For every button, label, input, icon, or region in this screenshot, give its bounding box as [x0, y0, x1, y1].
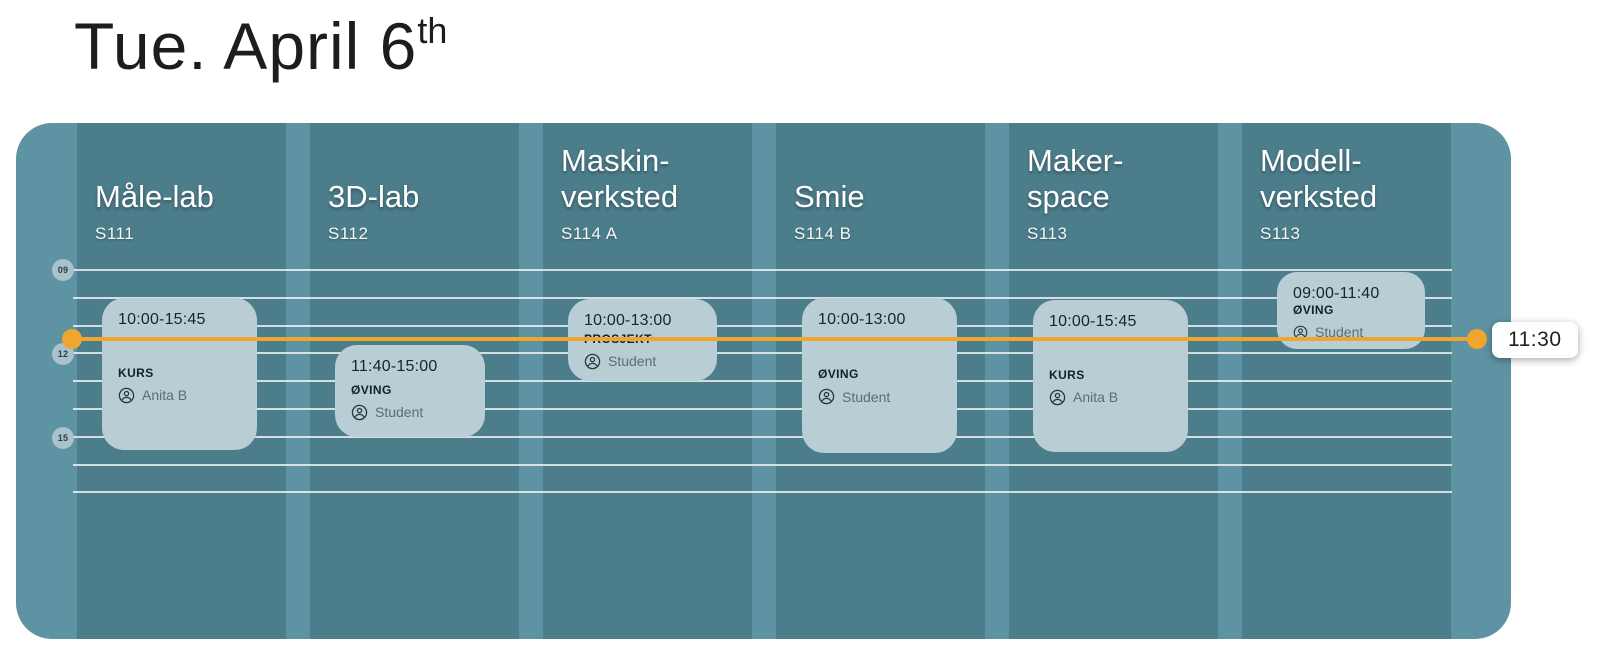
event-type: ØVING — [818, 367, 943, 381]
gridline-09 — [73, 269, 1452, 271]
gridline-16 — [73, 464, 1452, 466]
gridline-13 — [73, 380, 1452, 382]
gridline-11 — [73, 325, 1452, 327]
event-type: ØVING — [1293, 303, 1411, 317]
event-person: Anita B — [142, 387, 187, 403]
event-person: Student — [375, 404, 423, 420]
person-icon — [351, 404, 368, 421]
column-title: Smie — [794, 151, 969, 215]
event-type: ØVING — [351, 383, 471, 397]
event-person: Anita B — [1073, 389, 1118, 405]
person-icon — [818, 388, 835, 405]
schedule-board: Måle-lab S111 3D-lab S112 Maskin-verkste… — [16, 123, 1511, 639]
column-title: Maskin-verksted — [561, 151, 736, 215]
gridline-12 — [73, 352, 1452, 354]
event-card-smie[interactable]: 10:00-13:00 ØVING Student — [802, 298, 957, 453]
column-room: S114 B — [794, 224, 969, 244]
column-title: Maker-space — [1027, 151, 1202, 215]
event-person: Student — [608, 353, 656, 369]
page-title-ordinal: th — [417, 10, 447, 51]
event-time: 10:00-15:45 — [118, 311, 243, 329]
column-title: Måle-lab — [95, 151, 270, 215]
event-card-male-lab[interactable]: 10:00-15:45 KURS Anita B — [102, 298, 257, 450]
event-time: 10:00-13:00 — [818, 311, 943, 329]
page-title-text: Tue. April 6 — [74, 9, 417, 83]
gridline-17 — [73, 491, 1452, 493]
column-title: 3D-lab — [328, 151, 503, 215]
column-room: S112 — [328, 224, 503, 244]
person-icon — [1049, 389, 1066, 406]
column-room: S113 — [1027, 224, 1202, 244]
event-type: KURS — [1049, 368, 1174, 382]
current-time-dot-left — [62, 329, 82, 349]
column-room: S114 A — [561, 224, 736, 244]
event-card-3d-lab[interactable]: 11:40-15:00 ØVING Student — [335, 345, 485, 437]
column-room: S113 — [1260, 224, 1435, 244]
column-room: S111 — [95, 224, 270, 244]
event-time: 10:00-13:00 — [584, 312, 703, 330]
event-time: 09:00-11:40 — [1293, 285, 1411, 303]
current-time-dot-right — [1467, 329, 1487, 349]
gridline-10 — [73, 297, 1452, 299]
event-time: 11:40-15:00 — [351, 358, 471, 376]
time-tick-15: 15 — [52, 427, 74, 449]
event-time: 10:00-15:45 — [1049, 313, 1174, 331]
person-icon — [118, 387, 135, 404]
gridline-14 — [73, 408, 1452, 410]
event-card-maker-space[interactable]: 10:00-15:45 KURS Anita B — [1033, 300, 1188, 452]
column-title: Modell-verksted — [1260, 151, 1435, 215]
page-title: Tue. April 6th — [74, 10, 447, 83]
event-type: KURS — [118, 366, 243, 380]
current-time-label: 11:30 — [1492, 322, 1578, 358]
event-person: Student — [842, 389, 890, 405]
time-tick-09: 09 — [52, 259, 74, 281]
gridline-15 — [73, 436, 1452, 438]
current-time-line — [72, 337, 1477, 341]
person-icon — [584, 353, 601, 370]
